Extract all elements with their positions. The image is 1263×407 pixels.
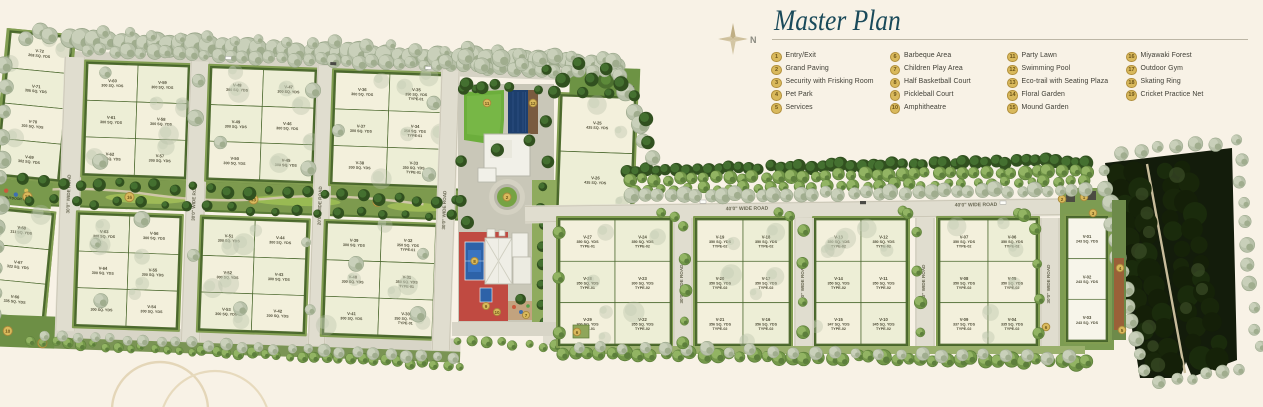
svg-text:V-32: V-32 [404,238,413,243]
svg-text:V-51: V-51 [225,233,234,238]
svg-text:9: 9 [485,304,488,309]
svg-text:TYPE-02: TYPE-02 [759,286,774,290]
svg-text:300 SQ. YDS: 300 SQ. YDS [149,159,172,164]
svg-text:243 SQ. YDS: 243 SQ. YDS [1076,321,1099,325]
svg-text:300 SQ. YDS: 300 SQ. YDS [631,281,654,285]
svg-text:V-46: V-46 [283,121,292,126]
svg-text:435 SQ. YDS: 435 SQ. YDS [586,126,609,131]
svg-text:300 SQ. YDS: 300 SQ. YDS [268,277,291,282]
svg-text:TYPE-02: TYPE-02 [635,327,650,331]
svg-text:TYPE-02: TYPE-02 [876,327,891,331]
svg-text:V-43: V-43 [275,272,284,277]
svg-text:16: 16 [127,195,133,200]
svg-text:V-36: V-36 [358,87,367,92]
svg-text:337 SQ. YDS: 337 SQ. YDS [953,323,976,327]
svg-text:V-11: V-11 [879,276,888,281]
svg-text:V-58: V-58 [157,117,166,122]
svg-text:350 SQ. YDS: 350 SQ. YDS [872,281,895,285]
svg-text:V-23: V-23 [638,276,647,281]
svg-text:TYPE-02: TYPE-02 [635,286,650,290]
svg-text:V-64: V-64 [99,266,108,271]
svg-text:2: 2 [1061,197,1064,202]
svg-text:V-07: V-07 [960,235,969,240]
svg-text:V-33: V-33 [409,160,418,165]
svg-text:300 SQ. YDS: 300 SQ. YDS [90,308,113,313]
svg-text:300 SQ. YDS: 300 SQ. YDS [151,85,174,90]
svg-text:TYPE-02: TYPE-02 [876,286,891,290]
svg-text:TYPE-02: TYPE-02 [831,286,846,290]
svg-text:TYPE-01: TYPE-01 [580,245,595,249]
svg-text:V-15: V-15 [834,317,843,322]
svg-text:4: 4 [1119,266,1122,271]
svg-text:350 SQ. YDS: 350 SQ. YDS [576,240,599,244]
svg-text:355 SQ. YDS: 355 SQ. YDS [631,323,654,327]
svg-text:300 SQ. YDS: 300 SQ. YDS [343,243,366,248]
svg-text:300 SQ. YDS: 300 SQ. YDS [340,316,363,321]
svg-text:V-24: V-24 [638,235,647,240]
svg-text:V-26: V-26 [591,175,600,180]
svg-text:TYPE-01: TYPE-01 [406,170,421,175]
svg-text:300 SQ. YDS: 300 SQ. YDS [143,236,166,241]
svg-text:350 SQ. YDS: 350 SQ. YDS [872,240,895,244]
svg-text:TYPE-02: TYPE-02 [713,245,728,249]
svg-text:V-50: V-50 [230,156,239,161]
svg-text:V-42: V-42 [273,308,282,313]
svg-text:TYPE-02: TYPE-02 [957,286,972,290]
svg-text:10: 10 [5,329,11,334]
svg-text:V-62: V-62 [106,151,115,156]
svg-text:300 SQ. YDS: 300 SQ. YDS [100,120,123,125]
svg-text:243 SQ. YDS: 243 SQ. YDS [1076,239,1099,243]
svg-text:V-10: V-10 [879,317,888,322]
svg-text:356 SQ. YDS: 356 SQ. YDS [755,323,778,327]
svg-text:V-08: V-08 [960,276,969,281]
svg-text:V-39: V-39 [350,238,359,243]
svg-text:40'0" WIDE ROAD: 40'0" WIDE ROAD [955,202,998,209]
svg-text:TYPE-02: TYPE-02 [759,245,774,249]
svg-text:5: 5 [1121,328,1124,333]
svg-text:V-04: V-04 [1008,317,1017,322]
svg-text:300 SQ. YDS: 300 SQ. YDS [267,314,290,319]
svg-text:6: 6 [576,330,579,335]
svg-text:V-14: V-14 [834,276,843,281]
svg-text:30'0" WIDE ROAD: 30'0" WIDE ROAD [1046,264,1051,304]
svg-text:V-01: V-01 [1083,234,1092,239]
svg-text:2: 2 [506,195,509,200]
svg-text:435 SQ. YDS: 435 SQ. YDS [584,181,607,186]
svg-text:V-16: V-16 [762,317,771,322]
svg-text:V-44: V-44 [276,235,285,240]
svg-text:N: N [750,35,757,45]
svg-text:300 SQ. YDS: 300 SQ. YDS [225,124,248,129]
svg-text:V-06: V-06 [1008,235,1017,240]
svg-text:TYPE-02: TYPE-02 [635,245,650,249]
svg-text:TYPE-02: TYPE-02 [759,327,774,331]
svg-text:V-21: V-21 [716,317,725,322]
svg-text:V-27: V-27 [583,235,592,240]
svg-text:V-59: V-59 [158,80,167,85]
svg-text:300 SQ. YDS: 300 SQ. YDS [140,309,163,314]
svg-text:TYPE-01: TYPE-01 [409,97,424,102]
svg-text:V-61: V-61 [107,115,116,120]
svg-text:V-25: V-25 [593,120,602,125]
svg-text:300 SQ. YDS: 300 SQ. YDS [351,92,374,97]
svg-text:347 SQ. YDS: 347 SQ. YDS [827,323,850,327]
svg-text:V-60: V-60 [108,78,117,83]
svg-text:TYPE-02: TYPE-02 [957,327,972,331]
svg-text:V-41: V-41 [347,311,356,316]
svg-text:V-03: V-03 [1083,315,1092,320]
svg-text:TYPE-02: TYPE-02 [957,245,972,249]
svg-text:V-09: V-09 [960,317,969,322]
svg-text:V-54: V-54 [147,304,156,309]
svg-text:300 SQ. YDS: 300 SQ. YDS [349,166,372,171]
svg-text:V-35: V-35 [412,87,421,92]
svg-text:TYPE-02: TYPE-02 [831,327,846,331]
svg-text:300 SQ. YDS: 300 SQ. YDS [276,126,299,131]
svg-text:TYPE-02: TYPE-02 [713,286,728,290]
svg-text:V-55: V-55 [149,267,158,272]
svg-text:V-38: V-38 [355,160,364,165]
svg-text:335 SQ. YDS: 335 SQ. YDS [1001,323,1024,327]
svg-text:300 SQ. YDS: 300 SQ. YDS [350,129,373,134]
svg-text:6: 6 [1045,325,1048,330]
svg-text:10: 10 [494,310,500,315]
svg-text:3: 3 [1092,211,1095,216]
svg-text:350 SQ. YDS: 350 SQ. YDS [953,240,976,244]
svg-text:7: 7 [525,313,528,318]
svg-text:300 SQ. YDS: 300 SQ. YDS [142,273,165,278]
svg-text:V-30: V-30 [401,311,410,316]
svg-text:350 SQ. YDS: 350 SQ. YDS [953,281,976,285]
svg-text:V-49: V-49 [232,119,241,124]
svg-text:40'0" WIDE ROAD: 40'0" WIDE ROAD [726,206,769,213]
svg-text:300 SQ. YDS: 300 SQ. YDS [269,240,292,245]
svg-text:356 SQ. YDS: 356 SQ. YDS [709,323,732,327]
svg-text:243 SQ. YDS: 243 SQ. YDS [1076,280,1099,284]
svg-text:300 SQ. YDS: 300 SQ. YDS [92,271,115,276]
svg-text:300 SQ. YDS: 300 SQ. YDS [101,83,124,88]
svg-text:TYPE-02: TYPE-02 [1005,327,1020,331]
svg-text:V-29: V-29 [583,317,592,322]
svg-text:345 SQ. YDS: 345 SQ. YDS [872,323,895,327]
svg-text:12: 12 [530,101,536,106]
svg-text:30'0" WIDE ROAD: 30'0" WIDE ROAD [679,264,684,304]
svg-text:V-19: V-19 [716,235,725,240]
svg-text:V-02: V-02 [1083,275,1092,280]
svg-text:300 SQ. YDS: 300 SQ. YDS [223,161,246,166]
svg-text:V-56: V-56 [150,231,159,236]
svg-text:V-34: V-34 [411,124,420,129]
svg-text:TYPE-01: TYPE-01 [400,248,415,253]
svg-text:350 SQ. YDS: 350 SQ. YDS [827,281,850,285]
svg-text:TYPE-02: TYPE-02 [713,327,728,331]
svg-text:TYPE-01: TYPE-01 [398,321,413,326]
svg-text:8: 8 [473,259,476,264]
svg-text:V-37: V-37 [357,123,366,128]
svg-text:V-53: V-53 [222,307,231,312]
svg-text:V-12: V-12 [879,235,888,240]
svg-text:11: 11 [485,101,490,106]
